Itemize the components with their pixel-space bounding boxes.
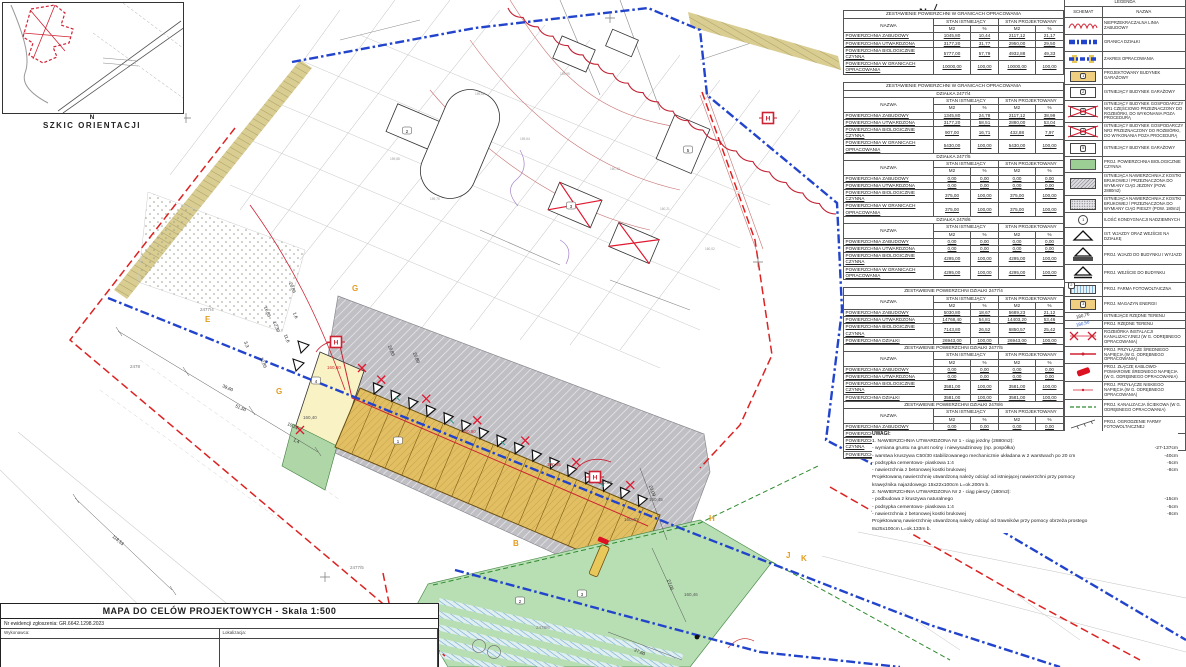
legend-label: GRANICA DZIAŁKI: [1102, 34, 1185, 51]
note-line: - nawierzchnia z betonowej kostki brukow…: [872, 511, 1178, 518]
area-table: ZESTAWIENIE POWIERZCHNI W GRANICACH OPRA…: [843, 10, 1064, 75]
value-cell: 0,00: [934, 182, 971, 189]
col-existing: STAN ISTNIEJĄCY: [934, 352, 999, 359]
plan-label: J: [786, 551, 790, 560]
title-block-cell-right: Lokalizacja:: [220, 629, 439, 638]
legend-symbol-red-block: [1065, 364, 1103, 382]
value-cell: 0,00: [934, 245, 971, 252]
legend-row: 3 ISTNIEJĄCY BUDYNEK GOSPODARCZY NR1 CZĘ…: [1065, 100, 1186, 123]
value-cell: 5777,00: [934, 47, 971, 60]
value-cell: 26,52: [971, 324, 999, 337]
legend-label: ILOŚĆ KONDYGNACJI NADZIEMNYCH: [1102, 213, 1185, 228]
value-cell: 1345,80: [934, 112, 971, 119]
legend-label: IST. WJAZDY ORAZ WEJŚCIE NA DZIAŁKĘ: [1102, 228, 1185, 246]
row-label: POWIERZCHNIA ZABUDOWY: [844, 112, 934, 119]
value-cell: 100,00: [1036, 140, 1064, 153]
plan-label: 39,60: [222, 383, 235, 392]
note-line: 8x25x100cm L=ok.133m b.: [872, 526, 1178, 533]
legend-label: ROZBIÓRKA INSTALACJI KANALIZACYJNEJ (W G…: [1102, 328, 1185, 346]
value-cell: 100,00: [1036, 337, 1064, 344]
col-projected: STAN PROJEKTOWANY: [999, 19, 1064, 26]
col-nazwa: NAZWA: [844, 19, 934, 33]
legend-label: PROJ. FARMA FOTOWOLTAICZNA: [1102, 283, 1185, 297]
value-cell: 3177,20: [934, 40, 971, 47]
registration-number: Nr ewidencji zgłoszenia: GR.6642.1298.20…: [1, 619, 438, 629]
legend-row: 3 PROJ. MAGAZYN ENERGII: [1065, 297, 1186, 313]
legend-symbol-tri: [1065, 228, 1103, 246]
value-cell: 0,00: [971, 374, 999, 381]
value-cell: 53,04: [1036, 119, 1064, 126]
svg-text:H: H: [334, 339, 339, 346]
col-projected: STAN PROJEKTOWANY: [999, 295, 1064, 302]
row-label: POWIERZCHNIA BIOLOGICZNIE CZYNNA: [844, 324, 934, 337]
table-title: ZESTAWIENIE POWIERZCHNI W GRANICACH OPRA…: [844, 11, 1064, 19]
value-cell: 4295,00: [934, 266, 971, 279]
title-block: MAPA DO CELÓW PROJEKTOWYCH - Skala 1:500…: [0, 603, 439, 667]
table-subtitle: DZIAŁKA 2477/4: [844, 90, 1064, 98]
col-existing: STAN ISTNIEJĄCY: [934, 295, 999, 302]
legend-symbol-circle-num: 1: [1065, 213, 1103, 228]
value-cell: 0,00: [1036, 238, 1064, 245]
legend-row: 180,50 PROJ. RZĘDNE TERENU: [1065, 321, 1186, 329]
legend-label: PROJ. RZĘDNE TERENU: [1102, 321, 1185, 329]
legend-row: GRANICA DZIAŁKI: [1065, 34, 1186, 51]
orientation-sketch-drawing: [3, 3, 183, 113]
setback-line-wavy: [508, 8, 836, 214]
value-cell: 0,00: [999, 175, 1036, 182]
plan-label: H: [709, 514, 715, 523]
legend-row: PROJ. ZŁĄCZE KABLOWO-POMIAROWE ŚREDNIEGO…: [1065, 364, 1186, 382]
plan-label: 159,95: [560, 72, 570, 76]
value-cell: 0,00: [934, 423, 971, 430]
legend-symbol-box-x: 4: [1065, 123, 1103, 141]
legend-label: PROJ. ZŁĄCZE KABLOWO-POMIAROWE ŚREDNIEGO…: [1102, 364, 1185, 382]
col-projected: STAN PROJEKTOWANY: [999, 409, 1064, 416]
legend-col-nazwa: NAZWA: [1102, 7, 1185, 18]
row-label: POWIERZCHNIA ZABUDOWY: [844, 309, 934, 316]
building-number-chip: 4: [312, 377, 321, 384]
value-cell: 5689,23: [999, 309, 1036, 316]
row-label: POWIERZCHNIA ZABUDOWY: [844, 175, 934, 182]
plan-label: B: [513, 539, 519, 548]
value-cell: 0,00: [1036, 245, 1064, 252]
value-cell: 3581,00: [999, 394, 1036, 401]
value-cell: 21,12: [1036, 309, 1064, 316]
title-block-rest-right: [220, 639, 439, 667]
row-label: POWIERZCHNIA ZABUDOWY: [844, 423, 934, 430]
value-cell: 0,00: [934, 238, 971, 245]
value-cell: 2117,12: [999, 33, 1036, 40]
value-cell: 10000,00: [999, 61, 1036, 74]
col-nazwa: NAZWA: [844, 352, 934, 366]
legend-label: ISTNIEJĄCY BUDYNEK GARAŻOWY: [1102, 84, 1185, 100]
title-block-rest-left: [1, 639, 220, 667]
hydrant-icon: H: [586, 472, 604, 483]
legend-symbol-box-yellow: 3: [1065, 297, 1103, 313]
building-number-chip: 2: [403, 127, 412, 134]
col-nazwa: NAZWA: [844, 295, 934, 309]
legend-row: 1 PROJEKTOWANY BUDYNEK GARAŻOWY: [1065, 68, 1186, 84]
legend-label: ISTNIEJĄCE RZĘDNE TERENU: [1102, 313, 1185, 321]
legend-symbol-red-nn: [1065, 382, 1103, 400]
col-existing: STAN ISTNIEJĄCY: [934, 224, 999, 231]
row-label: POWIERZCHNIA UTWARDZONA: [844, 245, 934, 252]
legend-label: PROJ. KANALIZACJA ŚCIEKOWA (W G. ODRĘBNE…: [1102, 399, 1185, 416]
plan-label: 2478: [130, 364, 141, 369]
legend-symbol-box-white: 5: [1065, 141, 1103, 157]
value-cell: 0,00: [971, 245, 999, 252]
area-table: ZESTAWIENIE POWIERZCHNI W GRANICACH OPRA…: [843, 82, 1064, 280]
value-cell: 100,00: [971, 140, 999, 153]
legend-row: 2 PROJ. FARMA FOTOWOLTAICZNA: [1065, 283, 1186, 297]
plan-label: 2478/6: [536, 625, 550, 630]
legend-label: PROJEKTOWANY BUDYNEK GARAŻOWY: [1102, 68, 1185, 84]
table-subtitle: ZESTAWIENIE POWIERZCHNI DZIAŁKI 2477/4: [844, 288, 1064, 296]
legend-label: ZAKRES OPRACOWANIA: [1102, 51, 1185, 68]
legend-symbol-red-xx: [1065, 328, 1103, 346]
legend-symbol-tri-double: [1065, 246, 1103, 265]
legend-symbol-green-dash: [1065, 399, 1103, 416]
legend-row: PROJ. WEJŚCIE DO BUDYNKU: [1065, 265, 1186, 283]
plan-label: 2477/4: [200, 307, 214, 312]
note-line: - podbudowa z kruszywa naturalnego-15cm: [872, 496, 1178, 503]
value-cell: 0,00: [999, 366, 1036, 373]
legend-label: PROJ. POWIERZCHNIA BIOLOGICZNIE CZYNNA: [1102, 157, 1185, 173]
legend-label: ISTNIEJĄCA NAWIERZCHNIA Z KOSTKI BRUKOWE…: [1102, 173, 1185, 196]
value-cell: 53,46: [1036, 317, 1064, 324]
value-cell: 4295,00: [999, 253, 1036, 266]
col-existing: STAN ISTNIEJĄCY: [934, 19, 999, 26]
plan-label: G: [352, 284, 358, 293]
plot-entrance-triangles: [293, 341, 309, 371]
building-number-chip: 1: [394, 437, 403, 444]
plan-label: 160,40: [624, 517, 638, 522]
col-projected: STAN PROJEKTOWANY: [999, 161, 1064, 168]
row-label: POWIERZCHNIA W GRANICACH OPRACOWANIA: [844, 61, 934, 74]
value-cell: 100,00: [971, 253, 999, 266]
value-cell: 0,00: [1036, 366, 1064, 373]
plan-label: 118,53: [111, 534, 125, 547]
value-cell: 100,00: [971, 203, 999, 216]
legend-symbol-box-white: 2: [1065, 84, 1103, 100]
value-cell: 3581,00: [934, 394, 971, 401]
value-cell: 100,00: [971, 61, 999, 74]
value-cell: 0,00: [934, 374, 971, 381]
notes-title: UWAGI:: [872, 431, 1178, 437]
value-cell: 0,00: [934, 175, 971, 182]
area-summary-tables: ZESTAWIENIE POWIERZCHNI W GRANICACH OPRA…: [843, 10, 1065, 466]
row-label: POWIERZCHNIA W GRANICACH OPRACOWANIA: [844, 203, 934, 216]
value-cell: 3581,00: [999, 381, 1036, 394]
road-band-2: [688, 12, 841, 70]
svg-text:H: H: [593, 474, 598, 481]
value-cell: 0,00: [1036, 182, 1064, 189]
plan-label: 159,82: [475, 92, 485, 96]
value-cell: 100,00: [1036, 394, 1064, 401]
value-cell: 0,00: [971, 366, 999, 373]
value-cell: 3581,00: [934, 381, 971, 394]
row-label: POWIERZCHNIA UTWARDZONA: [844, 40, 934, 47]
map-sheet: 20,8516,8512,301,611,63,312,8520,8525,80…: [0, 0, 1186, 667]
note-line: Projektowaną nawierzchnię utwardzoną nal…: [872, 474, 1178, 481]
value-cell: 31,77: [971, 40, 999, 47]
value-cell: 100,00: [971, 394, 999, 401]
legend-row: PROJ. POWIERZCHNIA BIOLOGICZNIE CZYNNA: [1065, 157, 1186, 173]
plan-label: 51,50: [235, 403, 248, 412]
value-cell: 100,00: [971, 381, 999, 394]
note-line: krawężnika najazdowego 15x22x100cm L=ok.…: [872, 482, 1178, 489]
legend-panel: LEGENDASCHEMAT NAZWA NIEPRZEKRACZALNA LI…: [1064, 0, 1186, 451]
value-cell: 6850,57: [999, 324, 1036, 337]
value-cell: 24,78: [971, 112, 999, 119]
value-cell: 0,00: [971, 423, 999, 430]
value-cell: 0,00: [934, 366, 971, 373]
value-cell: 0,00: [971, 182, 999, 189]
legend-row: 4 ISTNIEJĄCY BUDYNEK GOSPODARCZY NR2 PRZ…: [1065, 123, 1186, 141]
plan-label: E: [205, 315, 211, 324]
note-line: - warstwa kruszywa C50/30 stabilizowaneg…: [872, 453, 1178, 460]
value-cell: 0,00: [999, 245, 1036, 252]
plan-label: 11,6: [283, 334, 291, 344]
legend-row: PROJ. PRZYŁĄCZE NISKIEGO NAPIĘCIA (W G. …: [1065, 382, 1186, 400]
table-subtitle: ZESTAWIENIE POWIERZCHNI DZIAŁKI 2478/6: [844, 401, 1064, 409]
col-nazwa: NAZWA: [844, 224, 934, 238]
value-cell: 1045,80: [934, 33, 971, 40]
col-nazwa: NAZWA: [844, 409, 934, 423]
value-cell: 100,00: [971, 337, 999, 344]
table-subtitle: DZIAŁKA 2477/5: [844, 153, 1064, 161]
col-nazwa: NAZWA: [844, 98, 934, 112]
value-cell: 4295,00: [934, 253, 971, 266]
row-label: POWIERZCHNIA DZIAŁKI: [844, 394, 934, 401]
value-cell: 100,00: [1036, 61, 1064, 74]
value-cell: 38,99: [1036, 112, 1064, 119]
value-cell: 100,00: [1036, 253, 1064, 266]
building-number-chip: 3: [578, 590, 587, 597]
legend-table: LEGENDASCHEMAT NAZWA NIEPRZEKRACZALNA LI…: [1064, 0, 1186, 451]
legend-row: 2 ISTNIEJĄCY BUDYNEK GARAŻOWY: [1065, 84, 1186, 100]
legend-label: ISTNIEJĄCA NAWIERZCHNIA Z KOSTKI BRUKOWE…: [1102, 195, 1185, 213]
row-label: POWIERZCHNIA ZABUDOWY: [844, 33, 934, 40]
col-projected: STAN PROJEKTOWANY: [999, 224, 1064, 231]
value-cell: 100,00: [1036, 203, 1064, 216]
value-cell: 49,33: [1036, 47, 1064, 60]
legend-symbol-green: [1065, 157, 1103, 173]
value-cell: 0,00: [999, 182, 1036, 189]
row-label: POWIERZCHNIA BIOLOGICZNIE CZYNNA: [844, 47, 934, 60]
legend-label: ISTNIEJĄCY BUDYNEK GOSPODARCZY NR2 PRZEZ…: [1102, 123, 1185, 141]
plan-label: 1,6: [292, 312, 299, 320]
value-cell: 57,79: [971, 47, 999, 60]
value-cell: 7,97: [1036, 126, 1064, 139]
value-cell: 26943,00: [934, 337, 971, 344]
value-cell: 100,00: [1036, 381, 1064, 394]
table-subtitle: DZIAŁKA 2478/6: [844, 216, 1064, 224]
legend-symbol-granica: [1065, 34, 1103, 51]
legend-row: ZAKRES OPRACOWANIA: [1065, 51, 1186, 68]
value-cell: 4932,88: [999, 47, 1036, 60]
legend-symbol-box-yellow: 1: [1065, 68, 1103, 84]
row-label: POWIERZCHNIA DZIAŁKI: [844, 337, 934, 344]
orientation-sketch-frame: [2, 2, 184, 114]
value-cell: 10000,00: [934, 61, 971, 74]
value-cell: 7143,80: [934, 324, 971, 337]
value-cell: 4295,00: [999, 266, 1036, 279]
value-cell: 0,00: [1036, 175, 1064, 182]
value-cell: 0,00: [1036, 374, 1064, 381]
legend-label: PROJ. MAGAZYN ENERGII: [1102, 297, 1185, 313]
plan-label: 160,02: [705, 247, 715, 251]
legend-symbol-pv: 2: [1065, 283, 1103, 297]
row-label: POWIERZCHNIA UTWARDZONA: [844, 374, 934, 381]
legend-row: ISTNIEJĄCA NAWIERZCHNIA Z KOSTKI BRUKOWE…: [1065, 173, 1186, 196]
value-cell: 3177,20: [934, 119, 971, 126]
value-cell: 26943,00: [999, 337, 1036, 344]
value-cell: 25,42: [1036, 324, 1064, 337]
table-title: ZESTAWIENIE POWIERZCHNI W GRANICACH OPRA…: [844, 82, 1064, 90]
value-cell: 2117,12: [999, 112, 1036, 119]
legend-label: ISTNIEJĄCY BUDYNEK GARAŻOWY: [1102, 141, 1185, 157]
plan-label: 159,70: [430, 197, 440, 201]
plan-label: 3,3: [243, 341, 250, 349]
legend-symbol-elev-blue: 180,50: [1065, 321, 1103, 329]
value-cell: 21,17: [1036, 33, 1064, 40]
legend-row: PROJ. PRZYŁĄCZE ŚREDNIEGO NAPIĘCIA (W G.…: [1065, 346, 1186, 364]
note-line: - podsypka cementowo- piaskowa 1:4-5cm: [872, 504, 1178, 511]
legend-symbol-tri-line: [1065, 265, 1103, 283]
value-cell: 375,00: [999, 203, 1036, 216]
row-label: POWIERZCHNIA BIOLOGICZNIE CZYNNA: [844, 190, 934, 203]
value-cell: 5430,00: [999, 140, 1036, 153]
hydrant-icon: H: [759, 113, 777, 124]
plan-label: K: [801, 554, 807, 563]
value-cell: 5430,00: [934, 140, 971, 153]
row-label: POWIERZCHNIA ZABUDOWY: [844, 238, 934, 245]
legend-row: 5 ISTNIEJĄCY BUDYNEK GARAŻOWY: [1065, 141, 1186, 157]
col-projected: STAN PROJEKTOWANY: [999, 352, 1064, 359]
col-existing: STAN ISTNIEJĄCY: [934, 409, 999, 416]
legend-label: PROJ. WJAZD DO BUDYNKU I WYJAZD: [1102, 246, 1185, 265]
plan-label: 160,95: [547, 462, 561, 467]
note-line: 1. NAWIERZCHNIA UTWARDZONA Nr 1 - ciąg j…: [872, 438, 1178, 445]
plan-label: 160,12: [610, 167, 620, 171]
notes-panel: UWAGI: 1. NAWIERZCHNIA UTWARDZONA Nr 1 -…: [872, 431, 1178, 533]
legend-label: ISTNIEJĄCY BUDYNEK GOSPODARCZY NR1 CZĘŚC…: [1102, 100, 1185, 123]
value-cell: 100,00: [1036, 190, 1064, 203]
plan-label: 160,40: [303, 415, 317, 420]
legend-row: 1 ILOŚĆ KONDYGNACJI NADZIEMNYCH: [1065, 213, 1186, 228]
note-line: 2. NAWIERZCHNIA UTWARDZONA Nr 2 - ciąg p…: [872, 489, 1178, 496]
legend-symbol-zigzag: [1065, 18, 1103, 35]
legend-row: 180,76 ISTNIEJĄCE RZĘDNE TERENU: [1065, 313, 1186, 321]
value-cell: 0,00: [971, 175, 999, 182]
plan-label: 160,45: [649, 497, 663, 502]
col-projected: STAN PROJEKTOWANY: [999, 98, 1064, 105]
col-existing: STAN ISTNIEJĄCY: [934, 161, 999, 168]
note-line: Projektowaną nawierzchnię utwardzoną nal…: [872, 518, 1178, 525]
row-label: POWIERZCHNIA W GRANICACH OPRACOWANIA: [844, 140, 934, 153]
value-cell: 2950,00: [999, 40, 1036, 47]
value-cell: 14768,40: [934, 317, 971, 324]
row-label: POWIERZCHNIA ZABUDOWY: [844, 366, 934, 373]
legend-row: PROJ. WJAZD DO BUDYNKU I WYJAZD: [1065, 246, 1186, 265]
legend-label: NIEPRZEKRACZALNA LINIA ZABUDOWY: [1102, 18, 1185, 35]
table-subtitle: ZESTAWIENIE POWIERZCHNI DZIAŁKI 2477/5: [844, 344, 1064, 352]
legend-label: PROJ. PRZYŁĄCZE NISKIEGO NAPIĘCIA (W G. …: [1102, 382, 1185, 400]
row-label: POWIERZCHNIA UTWARDZONA: [844, 119, 934, 126]
legend-label: PROJ. PRZYŁĄCZE ŚREDNIEGO NAPIĘCIA (W G.…: [1102, 346, 1185, 364]
legend-symbol-hatch-diag: [1065, 173, 1103, 196]
plan-label: 12,85: [259, 357, 268, 370]
svg-text:H: H: [766, 115, 771, 122]
legend-row: ROZBIÓRKA INSTALACJI KANALIZACYJNEJ (W G…: [1065, 328, 1186, 346]
value-cell: 100,00: [1036, 266, 1064, 279]
value-cell: 375,00: [934, 203, 971, 216]
row-label: POWIERZCHNIA UTWARDZONA: [844, 317, 934, 324]
value-cell: 2880,00: [999, 119, 1036, 126]
plan-label: G: [276, 387, 282, 396]
row-label: POWIERZCHNIA BIOLOGICZNIE CZYNNA: [844, 381, 934, 394]
legend-label: PROJ. WEJŚCIE DO BUDYNKU: [1102, 265, 1185, 283]
value-cell: 375,00: [999, 190, 1036, 203]
plan-label: 160,90: [462, 429, 476, 434]
note-line: - nawierzchnia z betonowej kostki brukow…: [872, 467, 1178, 474]
hydrant-icon: H: [327, 337, 345, 348]
value-cell: 0,00: [971, 238, 999, 245]
legend-symbol-red-sn: [1065, 346, 1103, 364]
plan-label: 160,80: [327, 365, 341, 370]
note-line: - wymiana gruntu na grunt nośny i niewys…: [872, 445, 1178, 452]
legend-row: PROJ. KANALIZACJA ŚCIEKOWA (W G. ODRĘBNE…: [1065, 399, 1186, 416]
value-cell: 5030,80: [934, 309, 971, 316]
value-cell: 58,51: [971, 119, 999, 126]
col-nazwa: NAZWA: [844, 161, 934, 175]
value-cell: 375,00: [934, 190, 971, 203]
manhole-dot: [695, 635, 700, 640]
value-cell: 432,88: [999, 126, 1036, 139]
value-cell: 10,44: [971, 33, 999, 40]
row-label: POWIERZCHNIA UTWARDZONA: [844, 182, 934, 189]
plan-label: 159,64: [520, 137, 530, 141]
value-cell: 18,67: [971, 309, 999, 316]
stipple-area: [138, 192, 305, 332]
legend-row: NIEPRZEKRACZALNA LINIA ZABUDOWY: [1065, 18, 1186, 35]
note-line: - podsypka cementowo- piaskowa 1:4-5cm: [872, 460, 1178, 467]
plan-label: 160,21: [660, 207, 670, 211]
row-label: POWIERZCHNIA BIOLOGICZNIE CZYNNA: [844, 126, 934, 139]
value-cell: 0,00: [999, 238, 1036, 245]
value-cell: 100,00: [971, 266, 999, 279]
row-label: POWIERZCHNIA BIOLOGICZNIE CZYNNA: [844, 253, 934, 266]
legend-col-schemat: SCHEMAT: [1065, 7, 1103, 18]
legend-symbol-hatch-dot: [1065, 195, 1103, 213]
value-cell: 29,50: [1036, 40, 1064, 47]
plan-label: 159,88: [390, 157, 400, 161]
orientation-sketch: N SZKIC ORIENTACJI: [2, 2, 184, 130]
value-cell: 16,71: [971, 126, 999, 139]
existing-buildings: [386, 29, 710, 263]
building-number-chip: 5: [684, 146, 693, 153]
row-label: POWIERZCHNIA W GRANICACH OPRACOWANIA: [844, 266, 934, 279]
value-cell: 14403,20: [999, 317, 1036, 324]
legend-symbol-zakres: [1065, 51, 1103, 68]
value-cell: 0,00: [999, 423, 1036, 430]
plan-label: 160,46: [684, 592, 698, 597]
value-cell: 0,00: [999, 374, 1036, 381]
legend-symbol-box-x: 3: [1065, 100, 1103, 123]
value-cell: 907,00: [934, 126, 971, 139]
sketch-title: SZKIC ORIENTACJI: [2, 122, 182, 130]
